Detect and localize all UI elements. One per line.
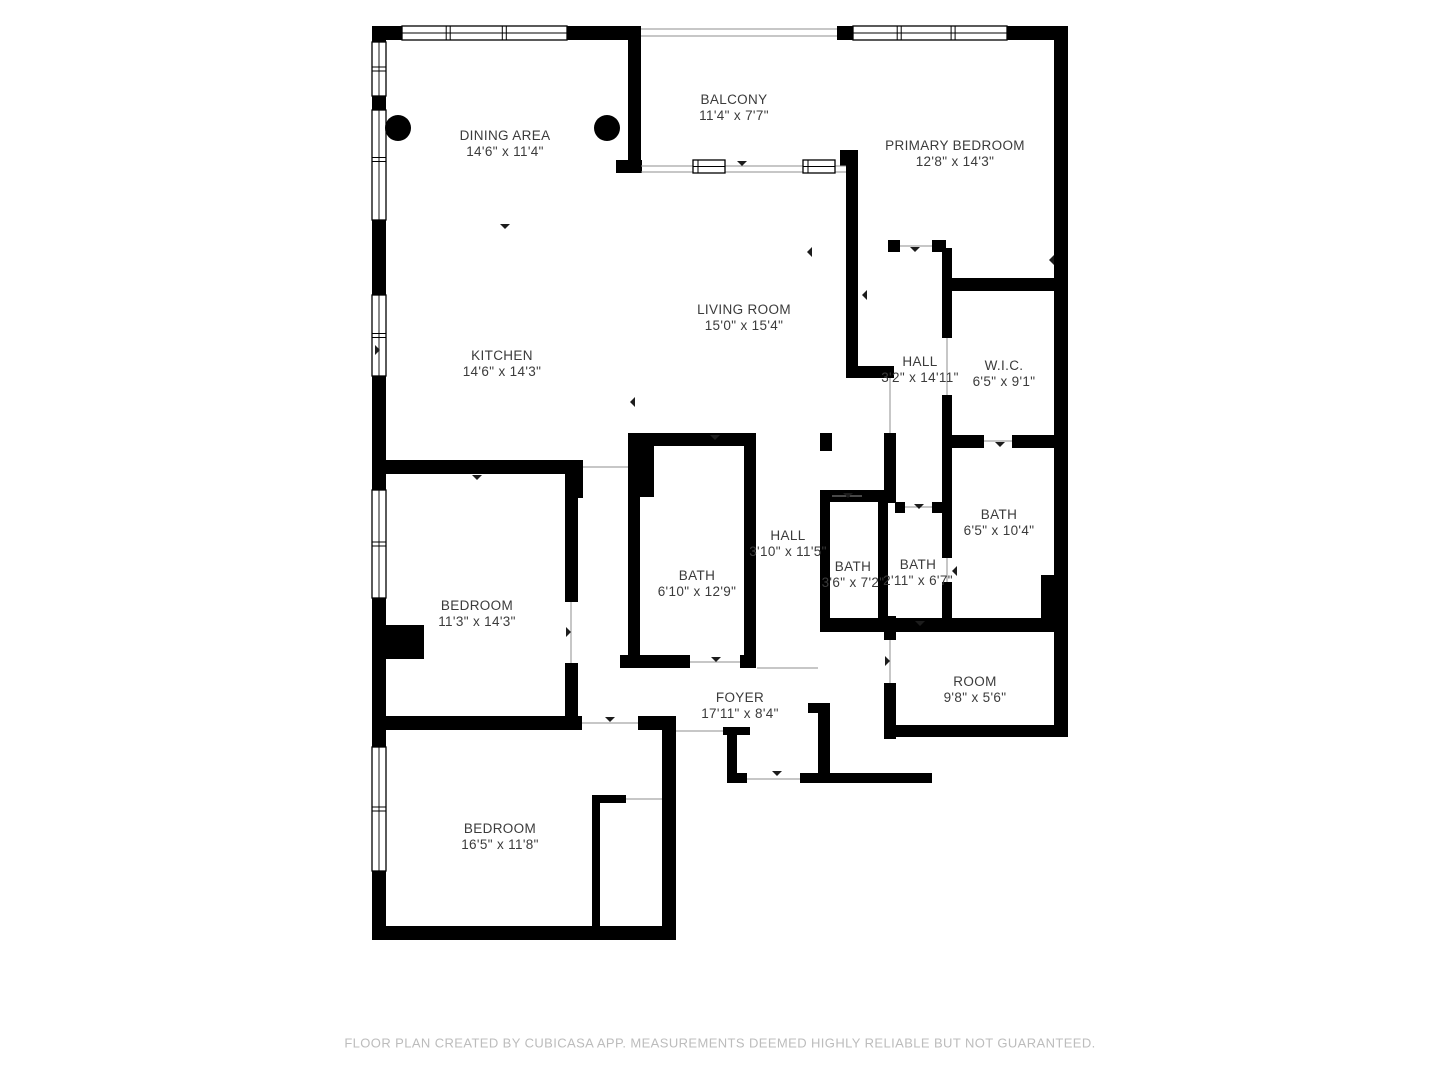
door-tick-icon [995, 442, 1005, 447]
column [594, 115, 620, 141]
wall-segment [884, 725, 1068, 737]
door-tick-icon [1049, 255, 1054, 265]
wall-segment [372, 220, 386, 295]
wall-segment [372, 26, 386, 42]
wall-segment [628, 26, 641, 172]
door-tick-icon [630, 397, 635, 407]
wall-segment [727, 735, 737, 773]
wall-segment [744, 433, 756, 668]
wall-segment [820, 618, 1058, 632]
door-tick-icon [910, 247, 920, 252]
wall-segment [808, 703, 830, 713]
floor-plan-canvas [0, 0, 1440, 1080]
door-tick-icon [566, 627, 571, 637]
door-tick-icon [772, 771, 782, 776]
wall-segment [820, 433, 832, 451]
door-tick-icon [952, 566, 957, 576]
door-tick-icon [500, 224, 510, 229]
wall-segment [944, 278, 1068, 291]
wall-segment [846, 366, 894, 378]
wall-segment [942, 248, 952, 338]
door-tick-icon [737, 161, 747, 166]
wall-segment [884, 616, 896, 640]
wall-segment [620, 655, 690, 668]
wall-segment [565, 474, 578, 602]
door-tick-icon [711, 657, 721, 662]
wall-segment [372, 625, 424, 659]
wall-segment [592, 795, 600, 930]
wall-segment [372, 716, 582, 730]
door-tick-icon [807, 247, 812, 257]
wall-segment [628, 433, 654, 497]
door-tick-icon [605, 717, 615, 722]
wall-segment [820, 500, 830, 620]
wall-segment [652, 433, 755, 446]
wall-segment [628, 495, 640, 660]
footer-disclaimer: FLOOR PLAN CREATED BY CUBICASA APP. MEAS… [344, 1036, 1095, 1051]
wall-segment [616, 160, 642, 173]
wall-segment [878, 502, 888, 620]
door-tick-icon [862, 290, 867, 300]
wall-segment [638, 716, 676, 730]
door-tick-icon [885, 656, 890, 666]
wall-segment [837, 26, 853, 40]
wall-segment [372, 96, 386, 110]
wall-segment [895, 502, 905, 513]
wall-segment [372, 376, 386, 492]
wall-segment [723, 727, 750, 735]
wall-segment [1041, 575, 1058, 623]
wall-segment [932, 502, 950, 513]
column [385, 115, 411, 141]
wall-segment [565, 663, 578, 723]
wall-segment [888, 240, 900, 252]
wall-segment [818, 705, 830, 773]
wall-segment [800, 773, 932, 783]
wall-segment [1012, 435, 1068, 448]
wall-segment [372, 926, 676, 940]
wall-segment [840, 150, 858, 166]
door-tick-icon [472, 475, 482, 480]
wall-segment [662, 727, 676, 940]
wall-segment [846, 166, 858, 370]
wall-segment [592, 795, 626, 803]
wall-segment [740, 655, 756, 668]
wall-segment [727, 773, 747, 783]
wall-segment [567, 26, 637, 40]
floor-plan-page: BALCONY11'4" x 7'7"DINING AREA14'6" x 11… [0, 0, 1440, 1080]
wall-segment [378, 460, 574, 474]
wall-segment [942, 435, 984, 448]
